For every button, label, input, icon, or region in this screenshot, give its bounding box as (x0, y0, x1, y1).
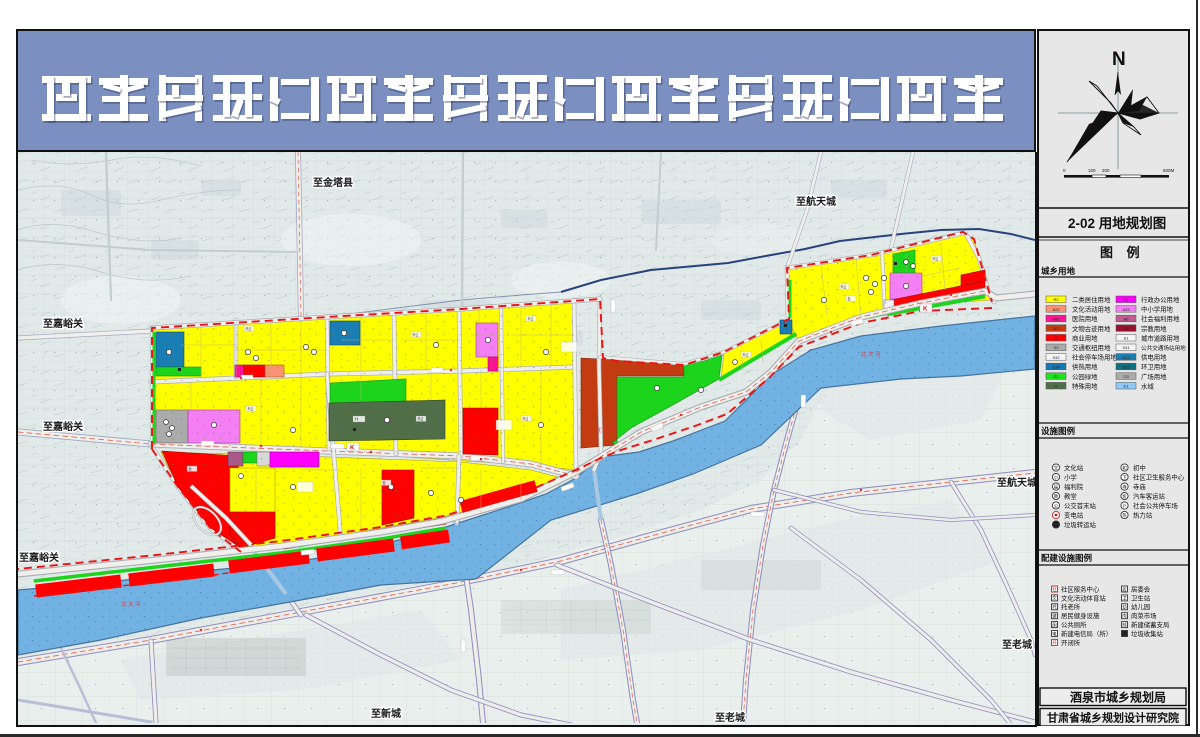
svg-text:邮: 邮 (1122, 621, 1127, 628)
svg-text:至老城: 至老城 (715, 711, 745, 723)
svg-text:至航天城: 至航天城 (796, 195, 836, 208)
svg-text:供热用地: 供热用地 (1072, 362, 1098, 371)
svg-text:托: 托 (1052, 604, 1057, 610)
svg-text:H: H (355, 417, 358, 422)
svg-text:二类居住用地: 二类居住用地 (1072, 295, 1111, 304)
svg-text:托老所: 托老所 (1061, 602, 1081, 611)
svg-text:N: N (1112, 49, 1126, 70)
svg-text:中小学用地: 中小学用地 (1141, 305, 1174, 314)
svg-text:初: 初 (1122, 464, 1127, 471)
svg-text:G3: G3 (1123, 374, 1129, 379)
svg-text:A22: A22 (1052, 307, 1060, 312)
svg-text:R2: R2 (418, 417, 424, 422)
svg-text:社区卫生服务中心: 社区卫生服务中心 (1133, 472, 1185, 481)
svg-text:A33: A33 (1122, 307, 1130, 312)
svg-text:A1: A1 (1124, 297, 1130, 302)
svg-text:社会公共停车场: 社会公共停车场 (1133, 501, 1178, 510)
svg-text:福利院: 福利院 (1064, 482, 1084, 491)
svg-text:A51: A51 (1052, 316, 1060, 321)
svg-text:社: 社 (1052, 586, 1057, 593)
svg-text:B: B (383, 481, 386, 486)
svg-text:文物古迹用地: 文物古迹用地 (1072, 324, 1111, 333)
svg-text:至嘉峪关: 至嘉峪关 (43, 420, 83, 433)
svg-text:B: B (189, 467, 192, 472)
svg-text:幼: 幼 (1122, 604, 1127, 611)
svg-text:文: 文 (1054, 464, 1059, 471)
svg-text:H: H (1055, 384, 1058, 389)
svg-text:电: 电 (1052, 630, 1057, 636)
svg-text:交通枢纽用地: 交通枢纽用地 (1072, 343, 1111, 352)
svg-text:医院用地: 医院用地 (1072, 314, 1098, 323)
svg-text:城乡用地: 城乡用地 (1041, 266, 1076, 276)
svg-text:水域: 水域 (1141, 381, 1154, 390)
svg-text:200: 200 (1102, 168, 1110, 173)
svg-text:至老城: 至老城 (1002, 638, 1032, 651)
svg-text:开闭所: 开闭所 (1061, 638, 1081, 647)
svg-text:A9: A9 (1124, 326, 1130, 331)
svg-text:北 大 河: 北 大 河 (121, 600, 141, 608)
svg-text:公共交通场站用地: 公共交通场站用地 (1141, 344, 1186, 352)
svg-text:垃圾收集站: 垃圾收集站 (1131, 629, 1164, 638)
svg-text:R2: R2 (413, 333, 419, 338)
svg-text:垃圾转运站: 垃圾转运站 (1064, 520, 1097, 529)
svg-text:U14: U14 (1052, 364, 1060, 369)
svg-text:文化活动体育站: 文化活动体育站 (1061, 593, 1106, 602)
svg-text:S3: S3 (1054, 345, 1060, 350)
svg-text:R2: R2 (248, 407, 254, 412)
svg-text:小: 小 (1054, 474, 1059, 481)
svg-text:寺庙: 寺庙 (1133, 482, 1146, 491)
svg-text:热: 热 (1122, 512, 1127, 519)
svg-text:初中: 初中 (1133, 463, 1146, 472)
svg-text:行政办公用地: 行政办公用地 (1141, 295, 1180, 304)
svg-text:福: 福 (1054, 483, 1059, 490)
svg-text:S42: S42 (1052, 355, 1060, 360)
svg-text:居委会: 居委会 (1131, 584, 1151, 593)
svg-text:至嘉峪关: 至嘉峪关 (43, 317, 83, 330)
svg-text:文: 文 (1052, 595, 1057, 602)
svg-text:环卫用地: 环卫用地 (1141, 362, 1167, 371)
svg-text:公共厕所: 公共厕所 (1061, 620, 1087, 629)
svg-text:北 大 河: 北 大 河 (861, 350, 881, 358)
svg-text:健: 健 (1052, 613, 1057, 620)
svg-text:P: P (1123, 503, 1126, 508)
svg-text:北 大 河: 北 大 河 (596, 426, 616, 434)
svg-text:R2: R2 (523, 417, 529, 422)
svg-text:广场用地: 广场用地 (1141, 372, 1167, 381)
svg-text:R2: R2 (1053, 297, 1059, 302)
svg-text:居民健身设施: 居民健身设施 (1061, 611, 1100, 620)
svg-text:卫: 卫 (1122, 475, 1127, 480)
svg-text:G1: G1 (1053, 374, 1059, 379)
svg-text:U12: U12 (1122, 355, 1130, 360)
svg-text:R2: R2 (841, 285, 847, 290)
svg-text:文化活动用地: 文化活动用地 (1072, 305, 1111, 314)
svg-text:卫: 卫 (1122, 596, 1127, 601)
svg-text:S1: S1 (1124, 336, 1130, 341)
svg-text:至嘉峪关: 至嘉峪关 (19, 551, 59, 564)
svg-text:热力站: 热力站 (1133, 510, 1153, 519)
svg-text:新建电信局（所）: 新建电信局（所） (1061, 629, 1112, 638)
svg-text:新建储蓄支局: 新建储蓄支局 (1131, 620, 1169, 629)
svg-text:0: 0 (1063, 168, 1066, 173)
svg-text:卫生站: 卫生站 (1131, 593, 1151, 602)
svg-text:2-02 用地规划图: 2-02 用地规划图 (1068, 215, 1166, 231)
svg-text:变电站: 变电站 (1064, 510, 1084, 519)
svg-text:至航天城: 至航天城 (997, 476, 1035, 489)
svg-text:公园绿地: 公园绿地 (1072, 372, 1098, 381)
svg-text:公交首末站: 公交首末站 (1064, 501, 1097, 510)
svg-text:寺: 寺 (1122, 484, 1127, 489)
svg-text:A7: A7 (1054, 326, 1060, 331)
svg-text:社会停车场用地: 社会停车场用地 (1072, 353, 1117, 362)
svg-text:设施图例: 设施图例 (1041, 426, 1076, 436)
svg-text:B: B (848, 297, 851, 302)
svg-text:教: 教 (1054, 493, 1059, 500)
svg-text:A6: A6 (1124, 316, 1130, 321)
svg-text:公: 公 (1054, 503, 1059, 508)
svg-text:社会福利用地: 社会福利用地 (1141, 314, 1180, 323)
svg-text:小学: 小学 (1064, 472, 1077, 481)
svg-text:U22: U22 (1122, 364, 1130, 369)
svg-text:幼儿园: 幼儿园 (1131, 602, 1150, 611)
svg-text:城市道路用地: 城市道路用地 (1141, 333, 1180, 342)
svg-text:R2: R2 (743, 353, 749, 358)
svg-text:配建设施图例: 配建设施图例 (1041, 553, 1093, 563)
svg-text:客: 客 (1122, 493, 1127, 500)
svg-text:特殊用地: 特殊用地 (1072, 381, 1098, 390)
svg-text:教堂: 教堂 (1064, 491, 1077, 500)
svg-text:500M: 500M (1163, 168, 1175, 173)
svg-text:宗教用地: 宗教用地 (1141, 324, 1167, 333)
svg-text:供电用地: 供电用地 (1141, 353, 1167, 362)
svg-text:酒泉市城乡规划局: 酒泉市城乡规划局 (1070, 690, 1166, 705)
svg-text:S41: S41 (1122, 345, 1130, 350)
svg-text:R2: R2 (528, 317, 534, 322)
svg-text:文化站: 文化站 (1064, 463, 1084, 472)
svg-text:肉菜市场: 肉菜市场 (1131, 611, 1157, 620)
svg-text:K: K (350, 446, 355, 452)
svg-text:100: 100 (1088, 168, 1096, 173)
svg-text:E1: E1 (1124, 384, 1130, 389)
svg-text:汽车客运站: 汽车客运站 (1133, 491, 1166, 500)
svg-text:社区服务中心: 社区服务中心 (1061, 584, 1100, 593)
svg-text:R2: R2 (933, 257, 939, 262)
svg-text:商业用地: 商业用地 (1072, 333, 1098, 342)
svg-text:肉: 肉 (1122, 613, 1126, 619)
svg-text:B: B (1055, 336, 1058, 341)
svg-text:至新城: 至新城 (371, 707, 401, 720)
svg-text:至金塔县: 至金塔县 (313, 176, 353, 189)
svg-text:R2: R2 (246, 327, 252, 332)
svg-text:K: K (923, 307, 928, 313)
svg-text:甘肃省城乡规划设计研究院: 甘肃省城乡规划设计研究院 (1047, 711, 1179, 725)
svg-text:图 例: 图 例 (1100, 245, 1145, 260)
